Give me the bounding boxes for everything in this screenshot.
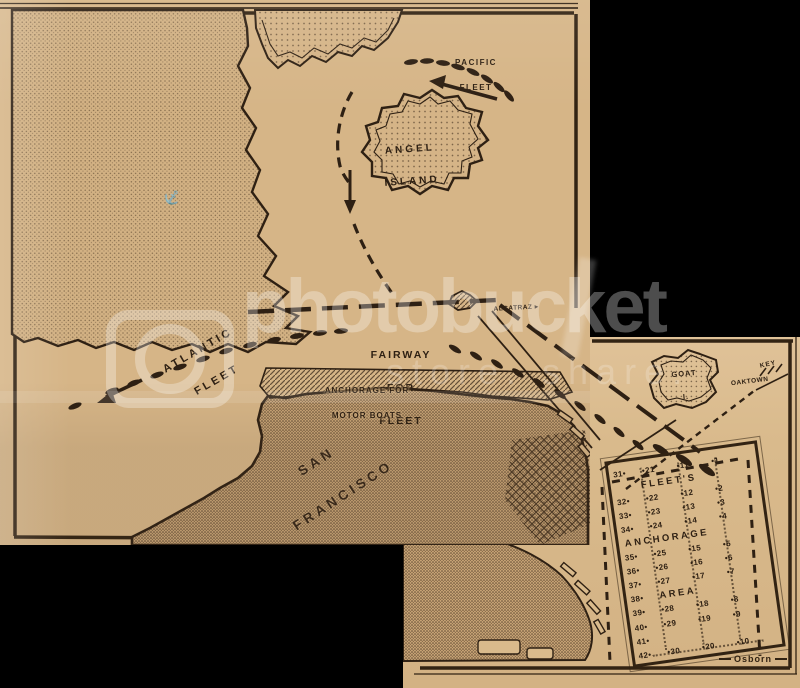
clipping-main-map: PACIFIC FLEET ANGEL ISLAND ATLANTIC FLEE… bbox=[0, 0, 590, 545]
signature-flourish bbox=[775, 658, 787, 660]
signature-flourish bbox=[719, 658, 731, 660]
fleet-anchorage-grid: 31••21•11•1FLEET'S32••22•12•233••23•13•3… bbox=[604, 440, 785, 667]
anchorage-grid-rows: 31••21•11•1FLEET'S32••22•12•233••23•13•3… bbox=[612, 448, 780, 663]
artist-signature: Osborn bbox=[719, 654, 787, 664]
goat-island-label: GOAT I. bbox=[662, 352, 707, 418]
alcatraz-label: ALCATRAZ ▸ bbox=[480, 297, 540, 320]
angel-island-label: ANGEL ISLAND bbox=[365, 121, 457, 211]
scan-light-band bbox=[0, 391, 590, 403]
alcatraz-pointer-icon: ▸ bbox=[535, 303, 539, 310]
pacific-fleet-label: PACIFIC FLEET bbox=[448, 42, 504, 109]
newspaper-map-scan: 31••21•11•1FLEET'S32••22•12•233••23•13•3… bbox=[0, 0, 800, 688]
